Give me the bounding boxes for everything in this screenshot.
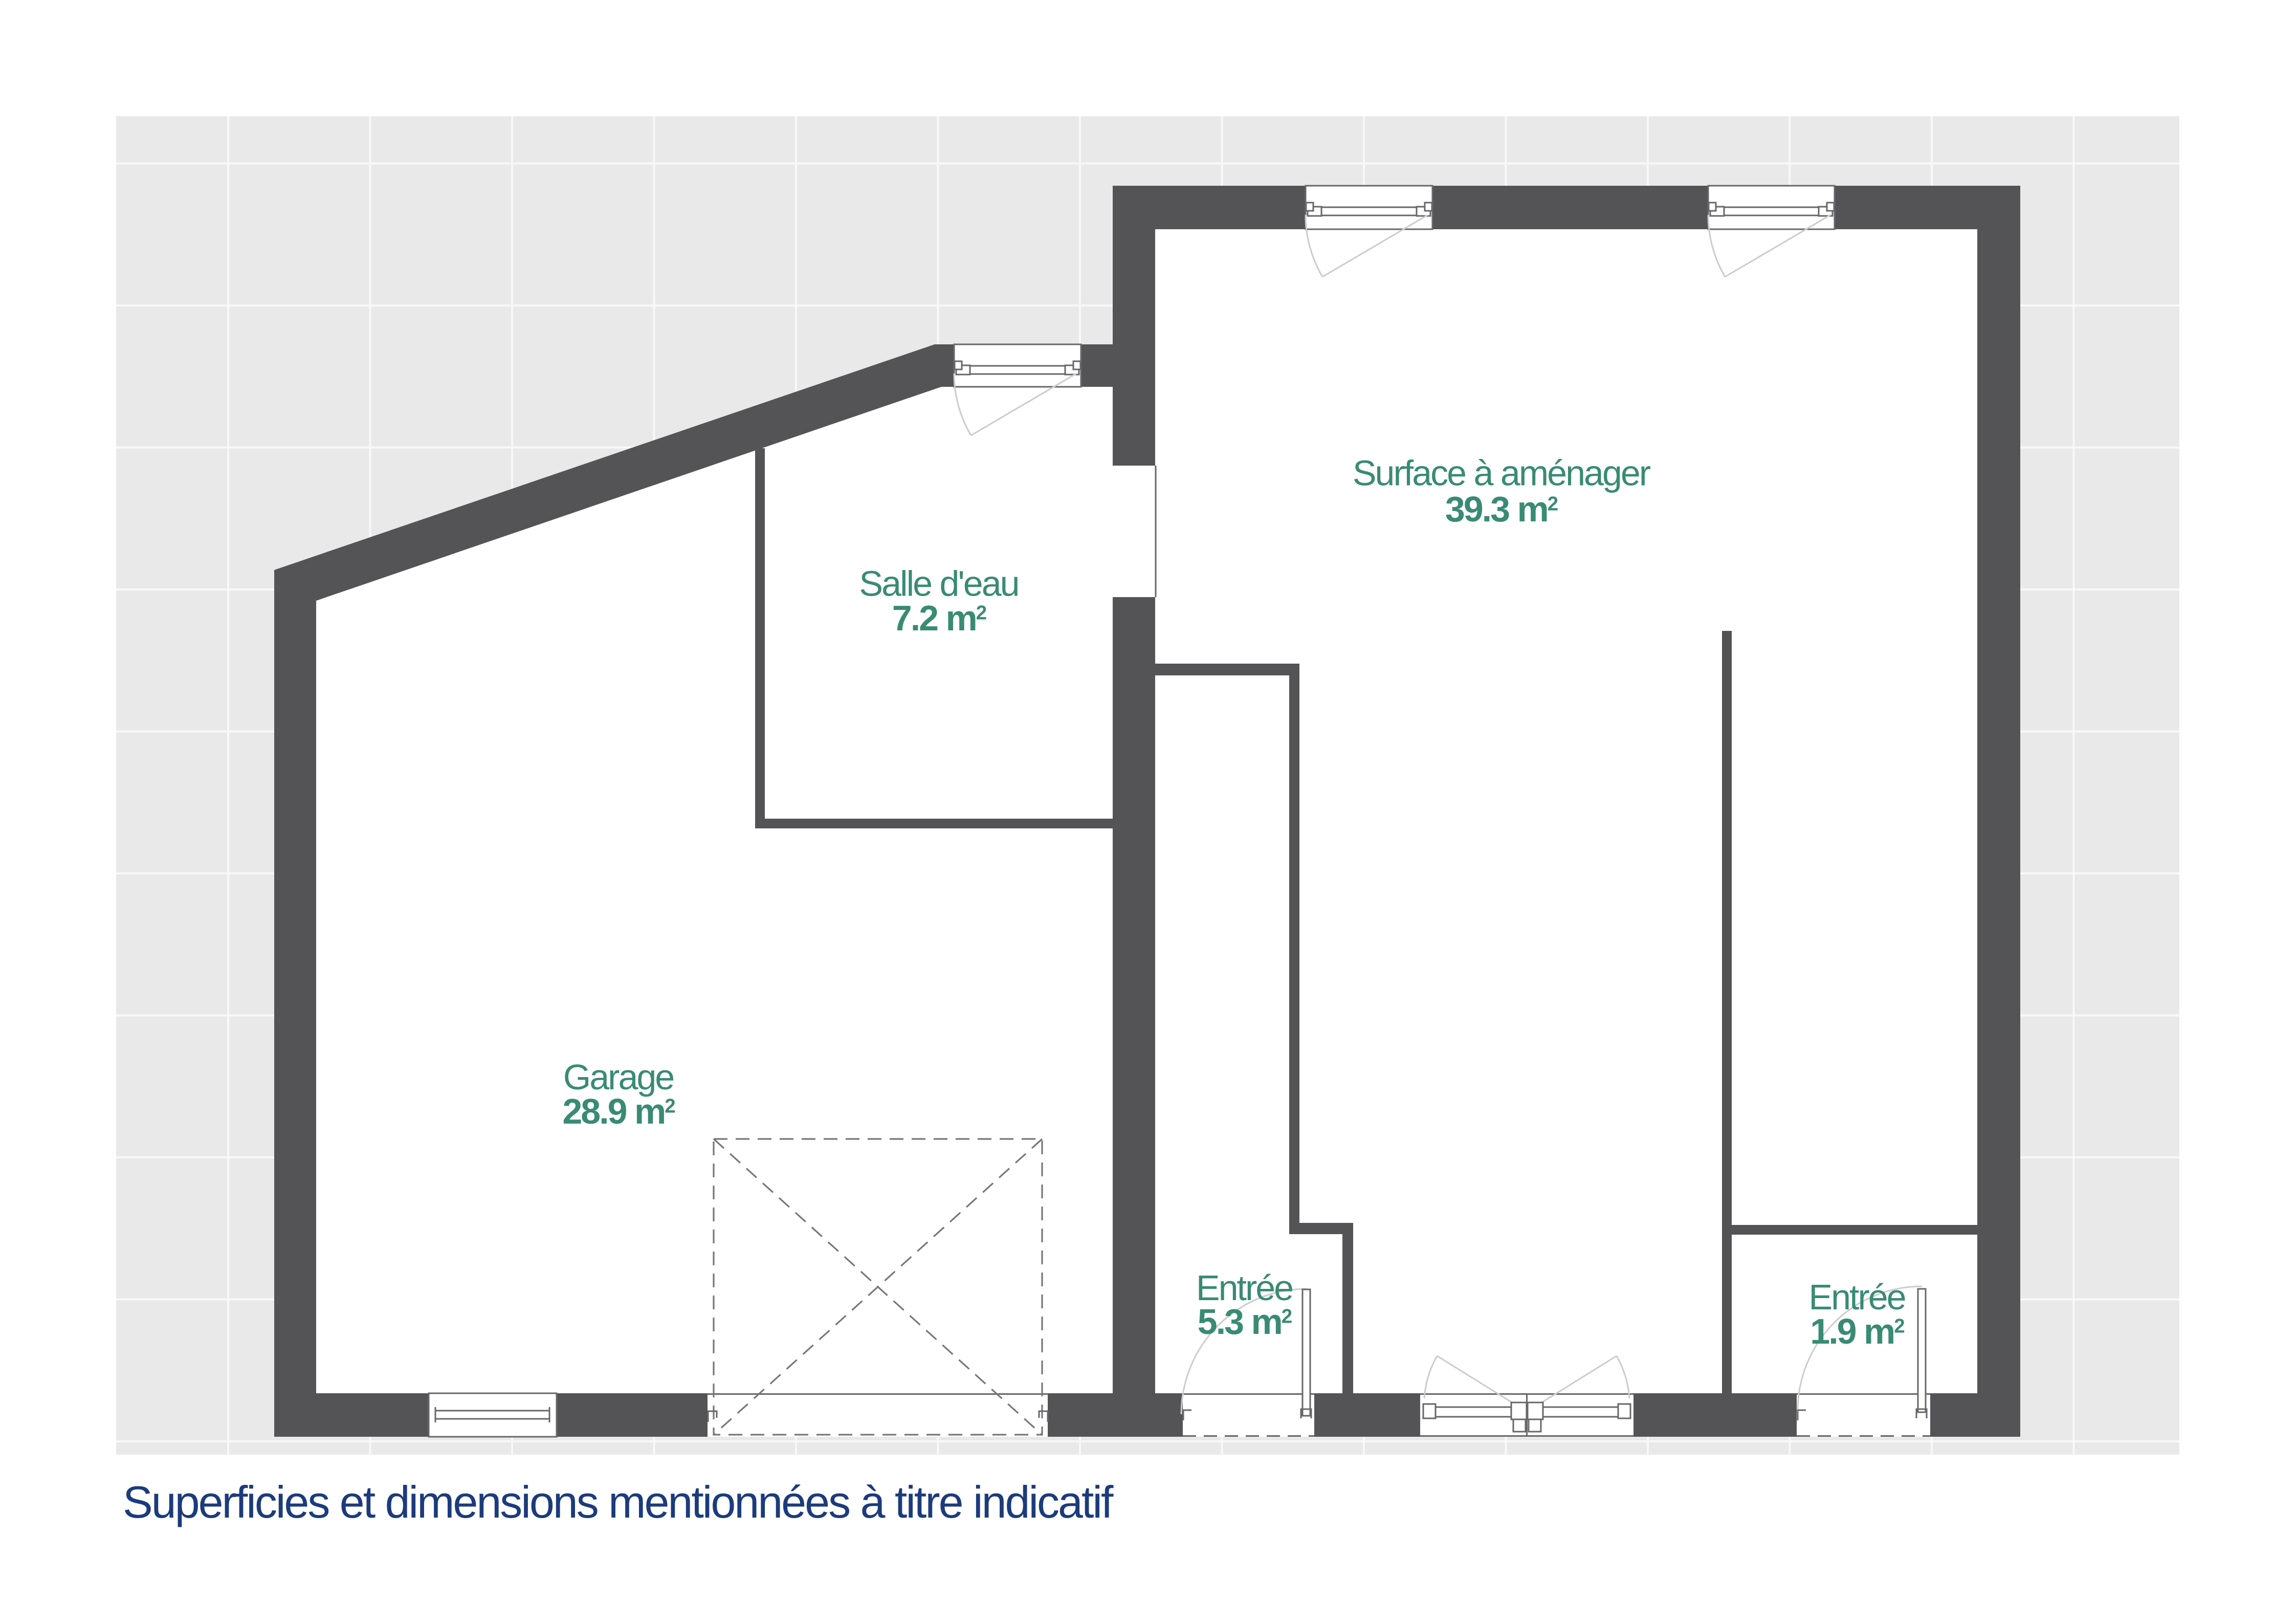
svg-text:Surface à aménager: Surface à aménager bbox=[1353, 453, 1651, 493]
svg-text:28.9 m2: 28.9 m2 bbox=[562, 1091, 675, 1131]
svg-text:39.3 m2: 39.3 m2 bbox=[1445, 489, 1558, 529]
svg-text:5.3 m2: 5.3 m2 bbox=[1198, 1302, 1292, 1342]
svg-text:7.2 m2: 7.2 m2 bbox=[892, 598, 986, 638]
svg-text:1.9 m2: 1.9 m2 bbox=[1810, 1311, 1904, 1351]
svg-text:Superficies et dimensions ment: Superficies et dimensions mentionnées à … bbox=[123, 1477, 1114, 1527]
svg-text:Salle d'eau: Salle d'eau bbox=[859, 564, 1018, 604]
